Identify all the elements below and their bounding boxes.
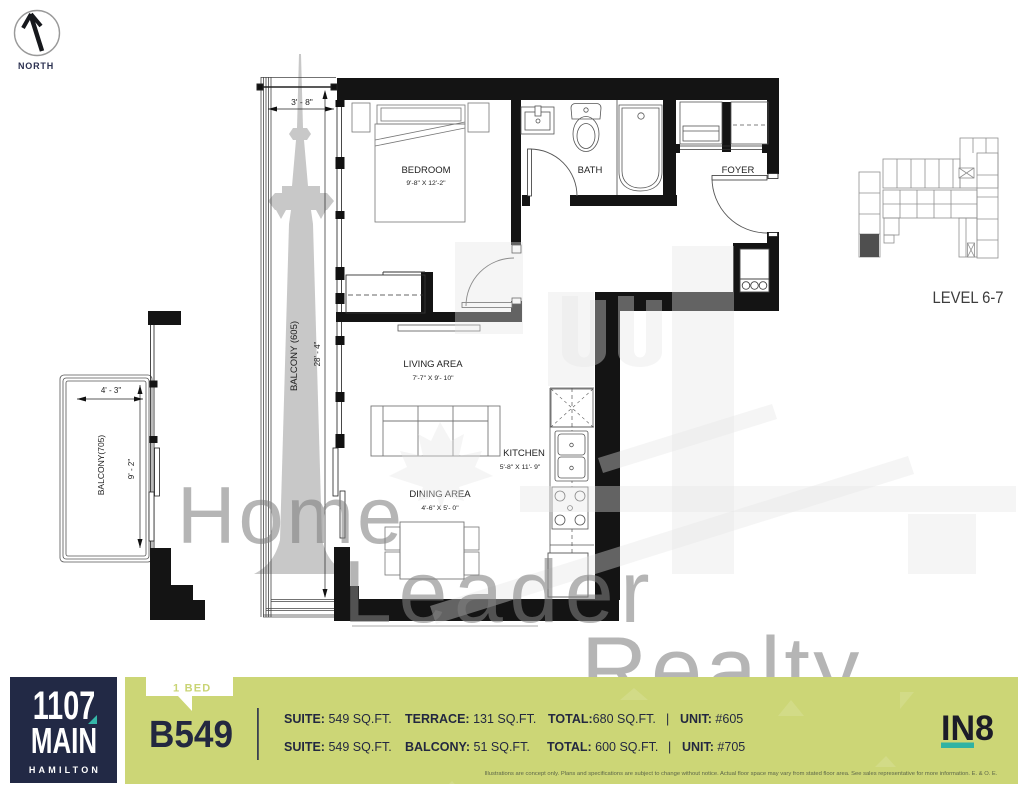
svg-text:BEDROOM: BEDROOM (401, 165, 450, 176)
svg-text:TOTAL:680 SQ.FT.: TOTAL:680 SQ.FT. (548, 712, 656, 726)
svg-text:NORTH: NORTH (18, 61, 54, 71)
svg-text:BALCONY: 51 SQ.FT.: BALCONY: 51 SQ.FT. (405, 740, 530, 754)
svg-text:BATH: BATH (578, 165, 603, 176)
svg-text:B549: B549 (149, 714, 233, 756)
svg-text:SUITE: 549 SQ.FT.: SUITE: 549 SQ.FT. (284, 712, 392, 726)
svg-text:LIVING AREA: LIVING AREA (403, 359, 463, 370)
svg-text:3' - 8": 3' - 8" (291, 97, 313, 107)
svg-text:9'-8" X 12'-2": 9'-8" X 12'-2" (406, 180, 446, 187)
svg-text:Illustrations are concept only: Illustrations are concept only. Plans an… (485, 771, 998, 777)
svg-text:BALCONY (605): BALCONY (605) (289, 321, 300, 391)
svg-text:FOYER: FOYER (722, 165, 755, 176)
svg-text:BALCONY(705): BALCONY(705) (96, 435, 106, 496)
svg-text:UNIT: #605: UNIT: #605 (680, 712, 743, 726)
svg-text:LEVEL 6-7: LEVEL 6-7 (933, 289, 1004, 307)
svg-text:|: | (668, 740, 671, 754)
svg-text:|: | (666, 712, 669, 726)
svg-text:4' - 3": 4' - 3" (101, 386, 122, 395)
svg-text:SUITE: 549 SQ.FT.: SUITE: 549 SQ.FT. (284, 740, 392, 754)
svg-text:IN8: IN8 (941, 709, 994, 748)
svg-text:7'-7" X 9'- 10": 7'-7" X 9'- 10" (412, 375, 454, 382)
svg-text:28' - 4": 28' - 4" (313, 341, 322, 366)
svg-text:TERRACE: 131 SQ.FT.: TERRACE: 131 SQ.FT. (405, 712, 536, 726)
svg-text:TOTAL: 600 SQ.FT.: TOTAL: 600 SQ.FT. (547, 740, 658, 754)
svg-text:KITCHEN: KITCHEN (503, 448, 545, 459)
svg-text:1 BED: 1 BED (173, 683, 211, 695)
svg-text:HAMILTON: HAMILTON (29, 765, 101, 775)
svg-text:5'-8" X 11'- 9": 5'-8" X 11'- 9" (500, 464, 541, 471)
svg-text:UNIT: #705: UNIT: #705 (682, 740, 745, 754)
svg-text:9' - 2": 9' - 2" (127, 459, 136, 480)
svg-text:MAIN: MAIN (31, 721, 97, 761)
